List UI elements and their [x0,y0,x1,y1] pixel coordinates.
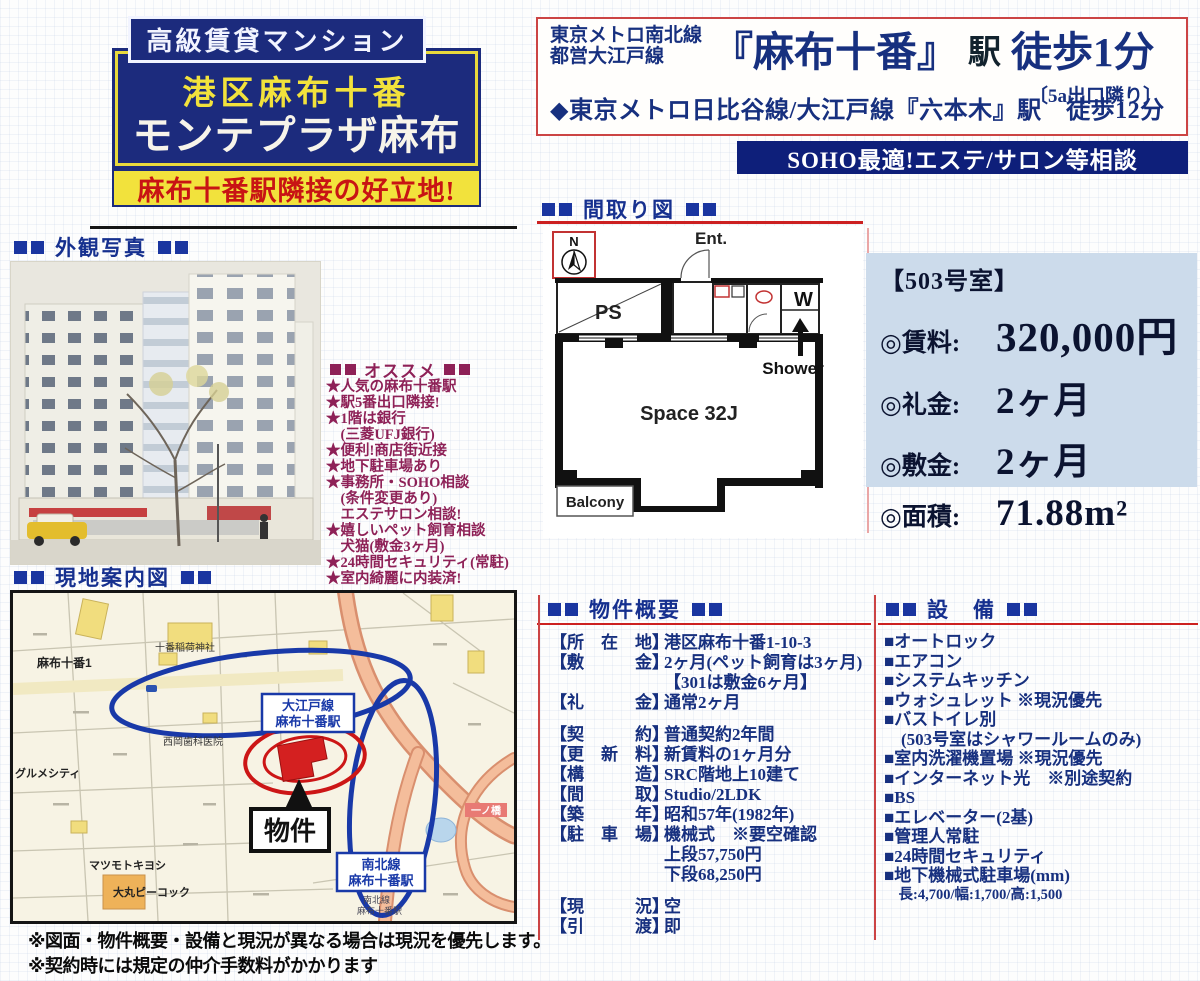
overview-row: 【契 約】普通契約2年間 [550,725,872,745]
recommend-item: ★事務所・SOHO相談 [326,475,522,491]
soho-banner: SOHO最適!エステ/サロン等相談 [737,141,1188,174]
overview-row: 【敷 金】2ヶ月(ペット飼育は3ヶ月) [550,653,872,673]
square-icon [345,364,356,375]
facility-item: ■地下機械式駐車場(mm) [884,866,1198,886]
floorplan-section-header: 間取り図 [542,194,716,224]
oedo-station-label: 大江戸線 麻布十番駅 [262,694,354,732]
access-box: 東京メトロ南北線 都営大江戸線 『麻布十番』 駅 徒歩1分 〔5a出口隣り〕 ◆… [536,17,1188,136]
facility-item: ■室内洗濯機置場 ※現況優先 [884,749,1198,769]
price-label: ◎面積: [880,497,996,533]
disclaimer-line: ※図面・物件概要・設備と現況が異なる場合は現況を優先します。 [28,929,551,954]
facility-item: ■インターネット光 ※別途契約 [884,769,1198,789]
overview-row: 上段57,750円 [550,845,872,865]
svg-text:Ent.: Ent. [695,229,727,248]
price-value: 2ヶ月 [996,370,1092,424]
category-badge: 高級賃貸マンション [128,16,426,63]
svg-text:W: W [794,289,813,311]
svg-text:麻布十番駅: 麻布十番駅 [274,714,341,729]
price-value: 71.88m² [996,492,1128,535]
price-label: ◎礼金: [880,385,996,421]
facilities-header-text: 設 備 [927,594,996,624]
facility-item: ■ウォシュレット ※現況優先 [884,691,1198,711]
overview-section-header: 物件概要 [548,594,722,624]
svg-text:N: N [569,234,578,249]
station-name: 『麻布十番』 [712,32,958,73]
floorplan-header-text: 間取り図 [583,194,675,224]
facility-item: ■システムキッチン [884,671,1198,691]
square-icon [559,203,572,216]
title-box-inner: 港区麻布十番 モンテプラザ麻布 [115,51,478,166]
square-icon [175,241,188,254]
recommend-item: ★地下駐車場あり [326,459,522,475]
price-value: 2ヶ月 [996,431,1092,485]
square-icon [565,603,578,616]
svg-text:Shower: Shower [762,359,824,378]
disclaimer-line: ※契約時には規定の仲介手数料がかかります [28,954,551,979]
recommend-item: ★室内綺麗に内装済! [326,571,522,587]
svg-text:大丸ピーコック: 大丸ピーコック [113,885,190,899]
square-icon [548,603,561,616]
recommend-item: ★1階は銀行 [326,411,522,427]
recommend-item: (三菱UFJ銀行) [326,427,522,443]
square-icon [459,364,470,375]
property-label: 物件 [251,809,329,851]
title-box: 港区麻布十番 モンテプラザ麻布 [112,48,481,169]
facility-item: ■24時間セキュリティ [884,847,1198,867]
svg-text:Balcony: Balcony [566,494,625,511]
overview-row: 【引 渡】即 [550,917,872,937]
overview-row: 【現 況】空 [550,897,872,917]
svg-text:麻布十番駅: 麻布十番駅 [357,905,402,916]
exit-note: 〔5a出口隣り〕 [1029,81,1162,108]
flyer-page: 高級賃貸マンション 港区麻布十番 モンテプラザ麻布 麻布十番駅隣接の好立地! 東… [0,0,1200,981]
facility-item: ■BS [884,788,1198,808]
building-photo-art [11,262,320,564]
price-row: ◎賃料: 320,000円 [880,303,1197,363]
overview-row: 【間 取】Studio/2LDK [550,785,872,805]
square-icon [703,203,716,216]
rail-line-1: 東京メトロ南北線 [550,25,702,46]
svg-text:西岡歯科医院: 西岡歯科医院 [163,735,223,748]
square-icon [692,603,705,616]
svg-text:麻布十番1: 麻布十番1 [36,655,92,670]
svg-text:大江戸線: 大江戸線 [282,698,335,713]
svg-text:物件: 物件 [264,816,316,846]
facility-item: 長:4,700/幅:1,700/高:1,500 [884,886,1198,906]
price-row: ◎敷金: 2ヶ月 [880,431,1197,485]
facility-item: ■エレベーター(2基) [884,808,1198,828]
rail-lines: 東京メトロ南北線 都営大江戸線 [550,25,702,73]
metro-mark [146,685,157,692]
divider-line [90,226,517,229]
square-icon [709,603,722,616]
price-label: ◎賃料: [880,323,996,359]
recommend-item: ★嬉しいペット飼育相談 [326,523,522,539]
column-rule [874,595,876,940]
floorplan-underline [537,221,863,224]
highlight-text: 麻布十番駅隣接の好立地! [138,169,456,208]
square-icon [181,571,194,584]
overview-row: 【礼 金】通常2ヶ月 [550,693,872,713]
square-icon [903,603,916,616]
facilities-list: ■オートロック ■エアコン ■システムキッチン ■ウォシュレット ※現況優先 ■… [884,632,1198,905]
access-main-row: 東京メトロ南北線 都営大江戸線 『麻布十番』 駅 徒歩1分 [550,25,1176,73]
photo-header-text: 外観写真 [55,232,147,262]
walk-time: 徒歩1分 [1011,32,1155,73]
facility-item: ■管理人常駐 [884,827,1198,847]
recommend-item: ★駅5番出口隣接! [326,395,522,411]
square-icon [158,241,171,254]
price-row: ◎礼金: 2ヶ月 [880,370,1197,424]
price-value: 320,000円 [996,303,1178,363]
recommend-item: 犬猫(敷金3ヶ月) [326,539,522,555]
floorplan: N Ent. PS W [543,226,863,538]
building-photo [10,261,321,565]
overview-underline [537,623,871,625]
price-row: ◎面積: 71.88m² [880,492,1197,535]
recommend-item: ★便利!商店街近接 [326,443,522,459]
square-icon [542,203,555,216]
room-price-box: 【503号室】 ◎賃料: 320,000円 ◎礼金: 2ヶ月 ◎敷金: 2ヶ月 … [866,253,1197,487]
svg-text:一ノ橋: 一ノ橋 [471,804,502,817]
overview-row: 【構 造】SRC階地上10建て [550,765,872,785]
map-section-header: 現地案内図 [14,562,211,592]
location-map-art: 麻布十番1 十番稲荷神社 西岡歯科医院 グルメシティ マツモトキヨシ 大丸ピーコ… [13,593,514,921]
recommend-item: ★人気の麻布十番駅 [326,379,522,395]
facility-item: ■エアコン [884,652,1198,672]
facility-item: ■バストイレ別 [884,710,1198,730]
district-title: 港区麻布十番 [183,76,411,114]
facility-item: ■オートロック [884,632,1198,652]
square-icon [1007,603,1020,616]
overview-row: 【更 新 料】新賃料の1ヶ月分 [550,745,872,765]
overview-row: 【301は敷金6ヶ月】 [550,673,872,693]
recommend-item: ★24時間セキュリティ(常駐) [326,555,522,571]
square-icon [198,571,211,584]
overview-header-text: 物件概要 [589,594,681,624]
overview-list: 【所 在 地】港区麻布十番1-10-3 【敷 金】2ヶ月(ペット飼育は3ヶ月) … [550,633,872,937]
svg-text:十番稲荷神社: 十番稲荷神社 [155,641,215,654]
svg-text:PS: PS [595,302,622,324]
floorplan-art: N Ent. PS W [543,226,863,538]
facilities-section-header: 設 備 [886,594,1037,624]
square-icon [330,364,341,375]
svg-text:麻布十番駅: 麻布十番駅 [347,873,414,888]
square-icon [1024,603,1037,616]
station-suffix: 駅 [968,35,1001,72]
photo-section-header: 外観写真 [14,232,188,262]
square-icon [14,241,27,254]
disclaimer-notes: ※図面・物件概要・設備と現況が異なる場合は現況を優先します。 ※契約時には規定の… [28,929,551,979]
recommend-item: エステサロン相談! [326,507,522,523]
location-map: 麻布十番1 十番稲荷神社 西岡歯科医院 グルメシティ マツモトキヨシ 大丸ピーコ… [10,590,517,924]
overview-row: 下段68,250円 [550,865,872,885]
svg-text:グルメシティ: グルメシティ [15,766,80,780]
rail-line-2: 都営大江戸線 [550,46,702,67]
recommend-item: (条件変更あり) [326,491,522,507]
room-number: 【503号室】 [880,261,1197,296]
map-header-text: 現地案内図 [55,562,170,592]
overview-row: 【所 在 地】港区麻布十番1-10-3 [550,633,872,653]
square-icon [14,571,27,584]
compass-icon: N [553,232,595,278]
svg-text:Space 32J: Space 32J [640,403,738,425]
overview-row: 【駐 車 場】機械式 ※要空確認 [550,825,872,845]
namboku-station-label: 南北線 麻布十番駅 [337,853,425,891]
bridge-label: 一ノ橋 [465,803,507,817]
facilities-underline [878,623,1198,625]
square-icon [686,203,699,216]
svg-text:南北線: 南北線 [363,894,390,905]
svg-text:マツモトキヨシ: マツモトキヨシ [89,859,166,872]
building-name: モンテプラザ麻布 [133,114,461,159]
square-icon [886,603,899,616]
highlight-strip: 麻布十番駅隣接の好立地! [112,169,481,207]
overview-row: 【築 年】昭和57年(1982年) [550,805,872,825]
overview-left-rule [538,595,540,940]
svg-text:南北線: 南北線 [361,857,401,872]
recommend-list: ★人気の麻布十番駅 ★駅5番出口隣接! ★1階は銀行 (三菱UFJ銀行) ★便利… [326,379,522,587]
square-icon [31,571,44,584]
square-icon [31,241,44,254]
square-icon [444,364,455,375]
price-label: ◎敷金: [880,446,996,482]
pedestrian [260,514,268,539]
facility-item: (503号室はシャワールームのみ) [884,730,1198,750]
